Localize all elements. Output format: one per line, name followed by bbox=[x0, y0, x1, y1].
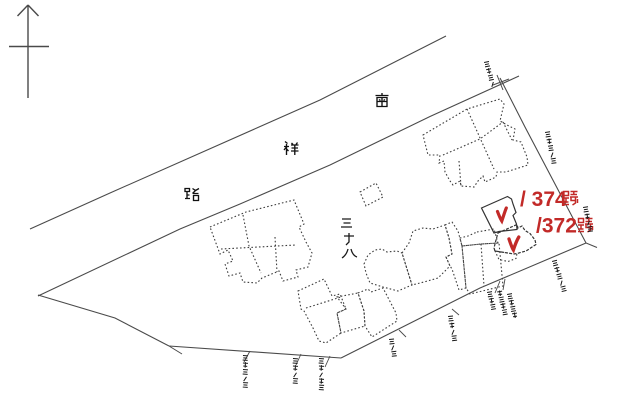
svg-text:/372: /372 bbox=[536, 215, 577, 238]
svg-text:/ 374: / 374 bbox=[520, 188, 567, 211]
